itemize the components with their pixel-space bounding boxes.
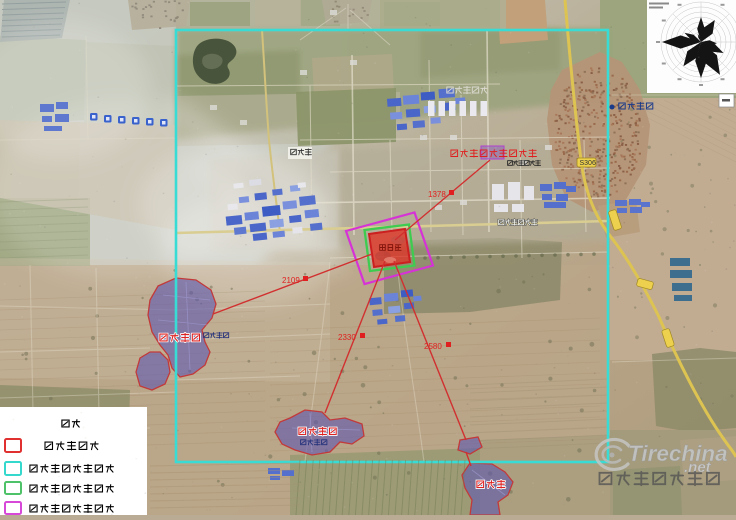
svg-text:1378: 1378 — [428, 190, 446, 199]
svg-text:2109: 2109 — [282, 276, 300, 285]
svg-text:S306: S306 — [580, 160, 596, 167]
svg-text:2330: 2330 — [338, 333, 356, 342]
svg-text:2580: 2580 — [424, 342, 442, 351]
svg-text:Tirechina: Tirechina — [628, 441, 728, 466]
